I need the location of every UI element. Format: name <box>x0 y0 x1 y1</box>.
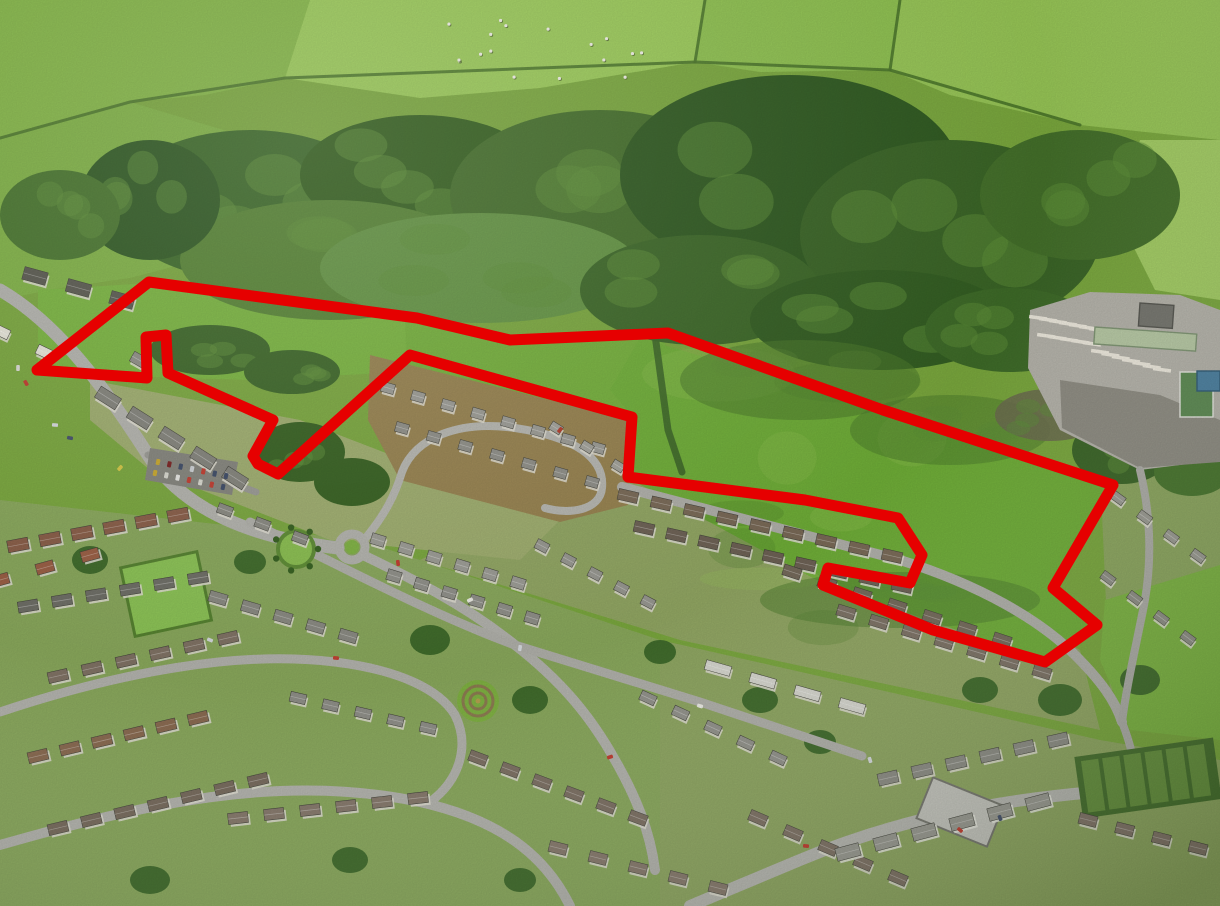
aerial-photo-frame <box>0 0 1220 906</box>
aerial-photograph <box>0 0 1220 906</box>
photo-light-overlay <box>0 0 1220 906</box>
